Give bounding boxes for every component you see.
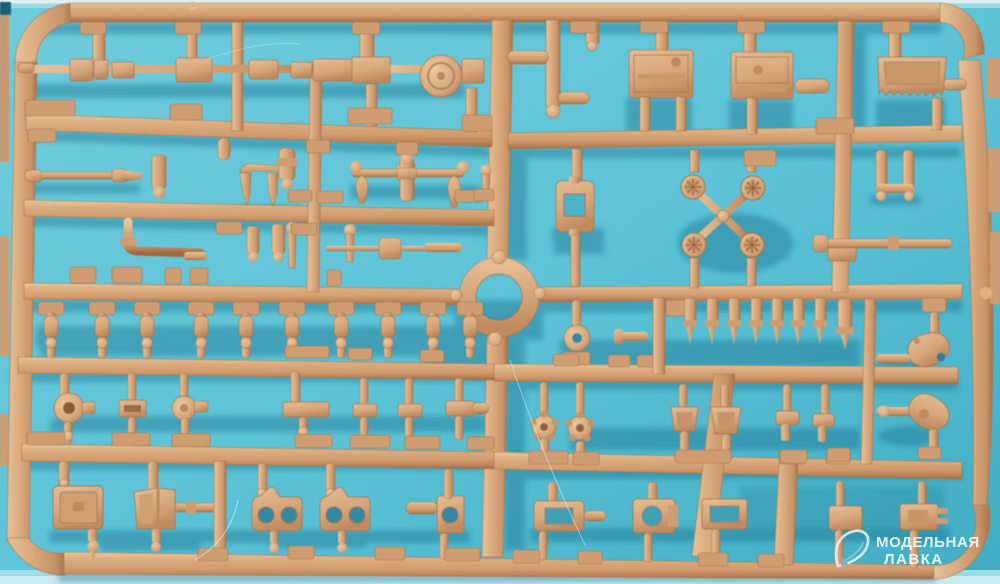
svg-text:МОДЕЛЬНАЯ: МОДЕЛЬНАЯ: [876, 534, 980, 551]
svg-text:ЛАВКА: ЛАВКА: [884, 551, 944, 568]
